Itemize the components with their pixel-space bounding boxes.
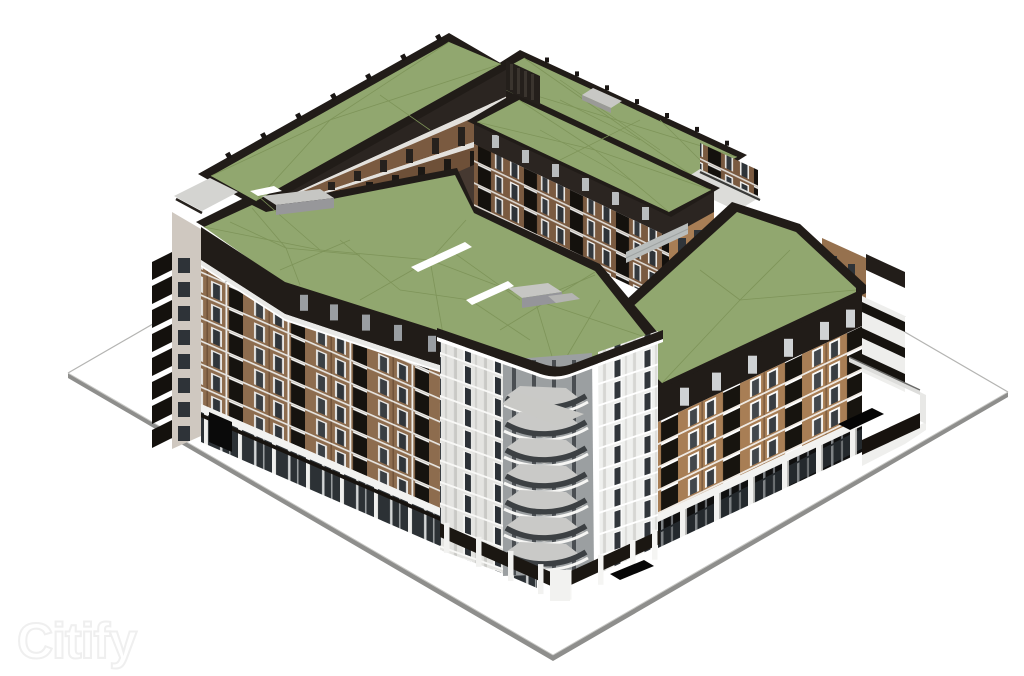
svg-text:Citify: Citify: [17, 613, 137, 669]
